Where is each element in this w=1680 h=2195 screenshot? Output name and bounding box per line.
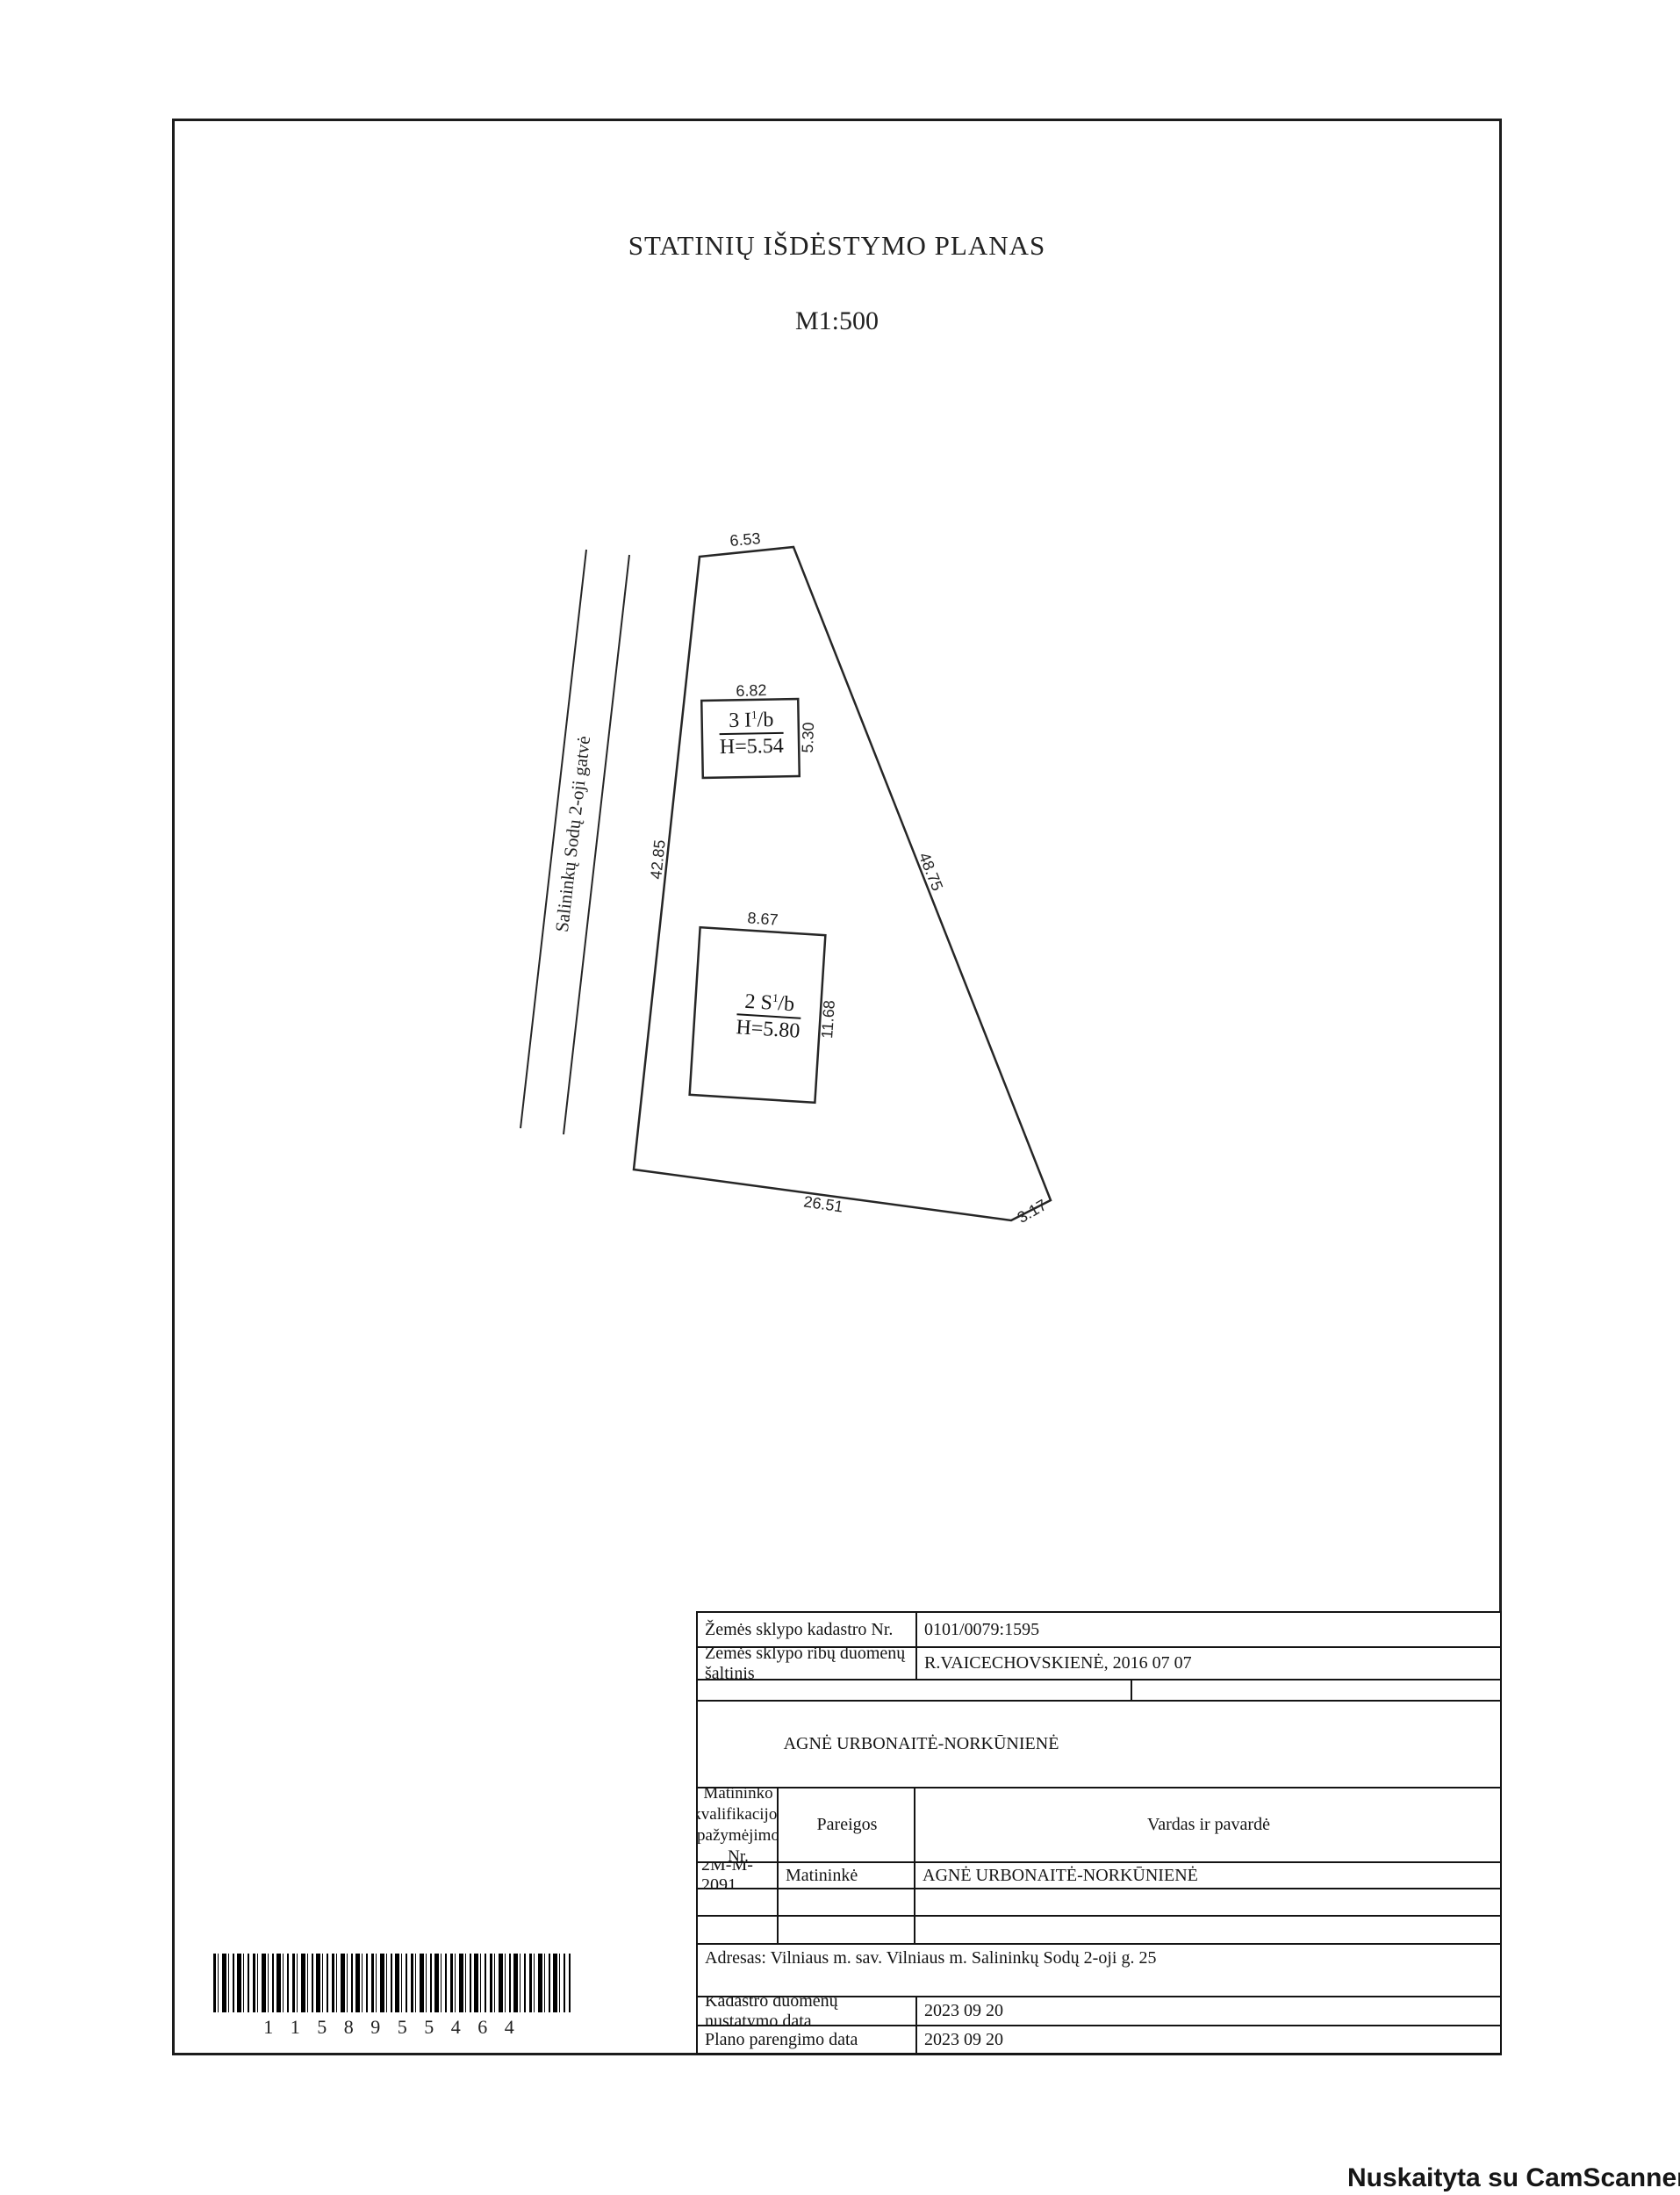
position-header: Pareigos — [777, 1788, 914, 1861]
kadastro-date-label: Kadastro duomenų nustatymo data — [698, 1997, 915, 2025]
plano-date-value: 2023 09 20 — [915, 2026, 1500, 2053]
empty-cell — [698, 1680, 1131, 1700]
table-row: 2M-M-2091 Matininkė AGNĖ URBONAITĖ-NORKŪ… — [698, 1863, 1500, 1889]
certificate-number: 2M-M-2091 — [698, 1863, 777, 1888]
camscanner-watermark: Nuskaityta su CamScanner — [1347, 2163, 1676, 2193]
ribu-saltinis-label: Žemės sklypo ribų duomenų šaltinis — [698, 1648, 915, 1679]
empty-cell — [777, 1889, 914, 1915]
address-row: Adresas: Vilniaus m. sav. Vilniaus m. Sa… — [698, 1945, 1500, 1996]
surveyor-company-header: AGNĖ URBONAITĖ-NORKŪNIENĖ — [698, 1702, 1143, 1787]
dimension-top-edge: 6.53 — [729, 529, 762, 551]
kadastro-date-value: 2023 09 20 — [915, 1997, 1500, 2025]
table-row: Kadastro duomenų nustatymo data 2023 09 … — [698, 1997, 1500, 2026]
building-1-label: 3 I1/b H=5.54 — [719, 703, 784, 759]
building-2-code: 2 S1/b — [736, 984, 802, 1019]
empty-cell — [1131, 1680, 1500, 1700]
parcel-boundary — [634, 547, 1051, 1220]
table-row — [698, 1680, 1500, 1702]
building-2-depth-dimension: 11.68 — [818, 999, 839, 1039]
empty-cell — [698, 1917, 777, 1943]
building-1-depth-dimension: 5.30 — [799, 722, 818, 753]
kadastro-nr-label: Žemės sklypo kadastro Nr. — [698, 1613, 915, 1646]
qualification-certificate-header: Matininko kvalifikacijos pažymėjimo Nr. — [698, 1788, 777, 1861]
table-row — [698, 1917, 1500, 1945]
building-2-height: H=5.80 — [736, 1015, 801, 1044]
building-1-height: H=5.54 — [720, 734, 784, 759]
name-surname-header: Vardas ir pavardė — [914, 1788, 1500, 1861]
empty-cell — [914, 1917, 1500, 1943]
cadastral-table: Žemės sklypo kadastro Nr. 0101/0079:1595… — [696, 1611, 1502, 2055]
surveyor-position: Matininkė — [777, 1863, 914, 1888]
empty-cell — [914, 1889, 1500, 1915]
kadastro-nr-value: 0101/0079:1595 — [915, 1613, 1500, 1646]
empty-cell — [1143, 1702, 1500, 1787]
scanned-page: STATINIŲ IŠDĖSTYMO PLANAS M1:500 Salinin… — [0, 0, 1680, 2195]
empty-cell — [698, 1889, 777, 1915]
building-1-code: 3 I1/b — [719, 703, 783, 735]
building-2-width-dimension: 8.67 — [747, 909, 779, 929]
building-1-width-dimension: 6.82 — [736, 681, 767, 701]
barcode — [213, 1954, 571, 2012]
table-row: Plano parengimo data 2023 09 20 — [698, 2026, 1500, 2053]
plano-date-label: Plano parengimo data — [698, 2026, 915, 2053]
table-row: Žemės sklypo kadastro Nr. 0101/0079:1595 — [698, 1613, 1500, 1648]
table-row: Matininko kvalifikacijos pažymėjimo Nr. … — [698, 1788, 1500, 1863]
barcode-digits: 1 1 5 8 9 5 5 4 6 4 — [213, 2016, 571, 2039]
surveyor-name: AGNĖ URBONAITĖ-NORKŪNIENĖ — [914, 1863, 1500, 1888]
table-row: Žemės sklypo ribų duomenų šaltinis R.VAI… — [698, 1648, 1500, 1680]
table-row: Adresas: Vilniaus m. sav. Vilniaus m. Sa… — [698, 1945, 1500, 1997]
table-row — [698, 1889, 1500, 1917]
table-row: AGNĖ URBONAITĖ-NORKŪNIENĖ — [698, 1702, 1500, 1788]
ribu-saltinis-value: R.VAICECHOVSKIENĖ, 2016 07 07 — [915, 1648, 1500, 1679]
empty-cell — [777, 1917, 914, 1943]
building-2-label: 2 S1/b H=5.80 — [736, 984, 803, 1043]
